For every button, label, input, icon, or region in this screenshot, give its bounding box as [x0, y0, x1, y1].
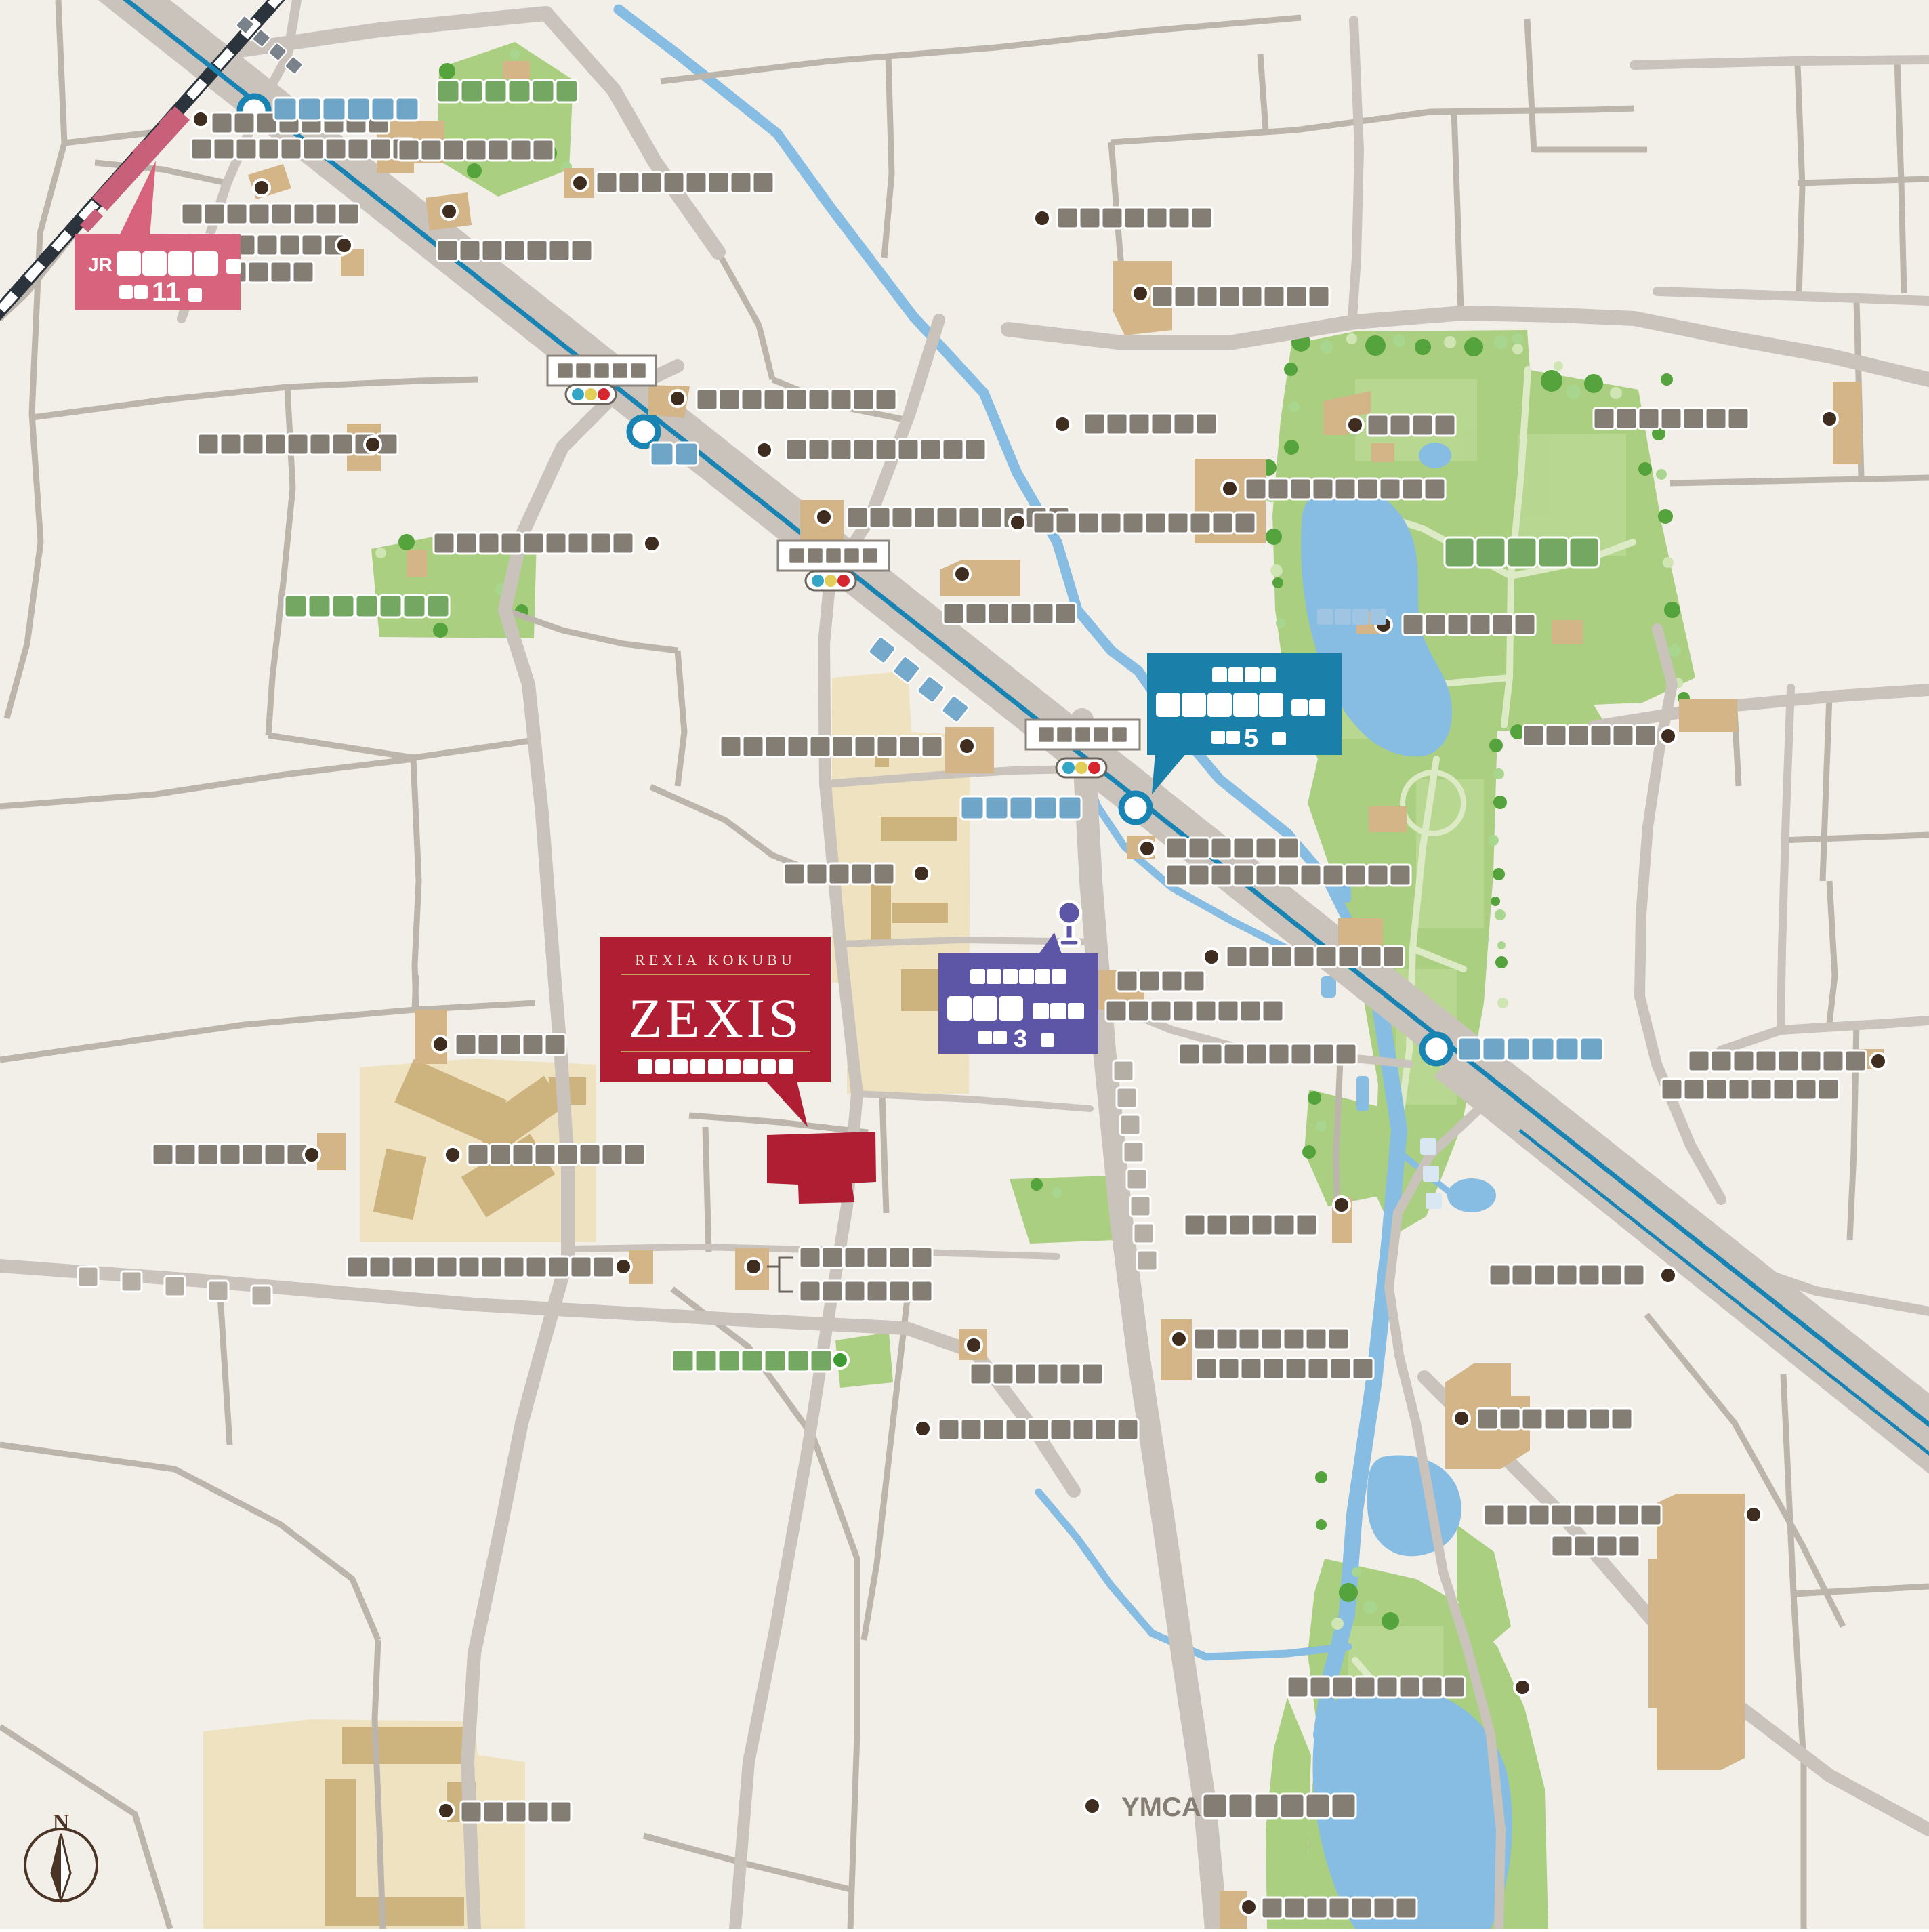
- svg-text:JR: JR: [88, 254, 112, 275]
- svg-text:11: 11: [152, 277, 180, 307]
- svg-text:REXIA KOKUBU: REXIA KOKUBU: [635, 951, 796, 968]
- svg-text:N: N: [53, 1810, 70, 1835]
- svg-text:3: 3: [1014, 1025, 1027, 1052]
- svg-text:5: 5: [1244, 724, 1258, 753]
- svg-text:ZEXIS: ZEXIS: [628, 987, 802, 1049]
- svg-text:YMCA: YMCA: [1121, 1792, 1201, 1822]
